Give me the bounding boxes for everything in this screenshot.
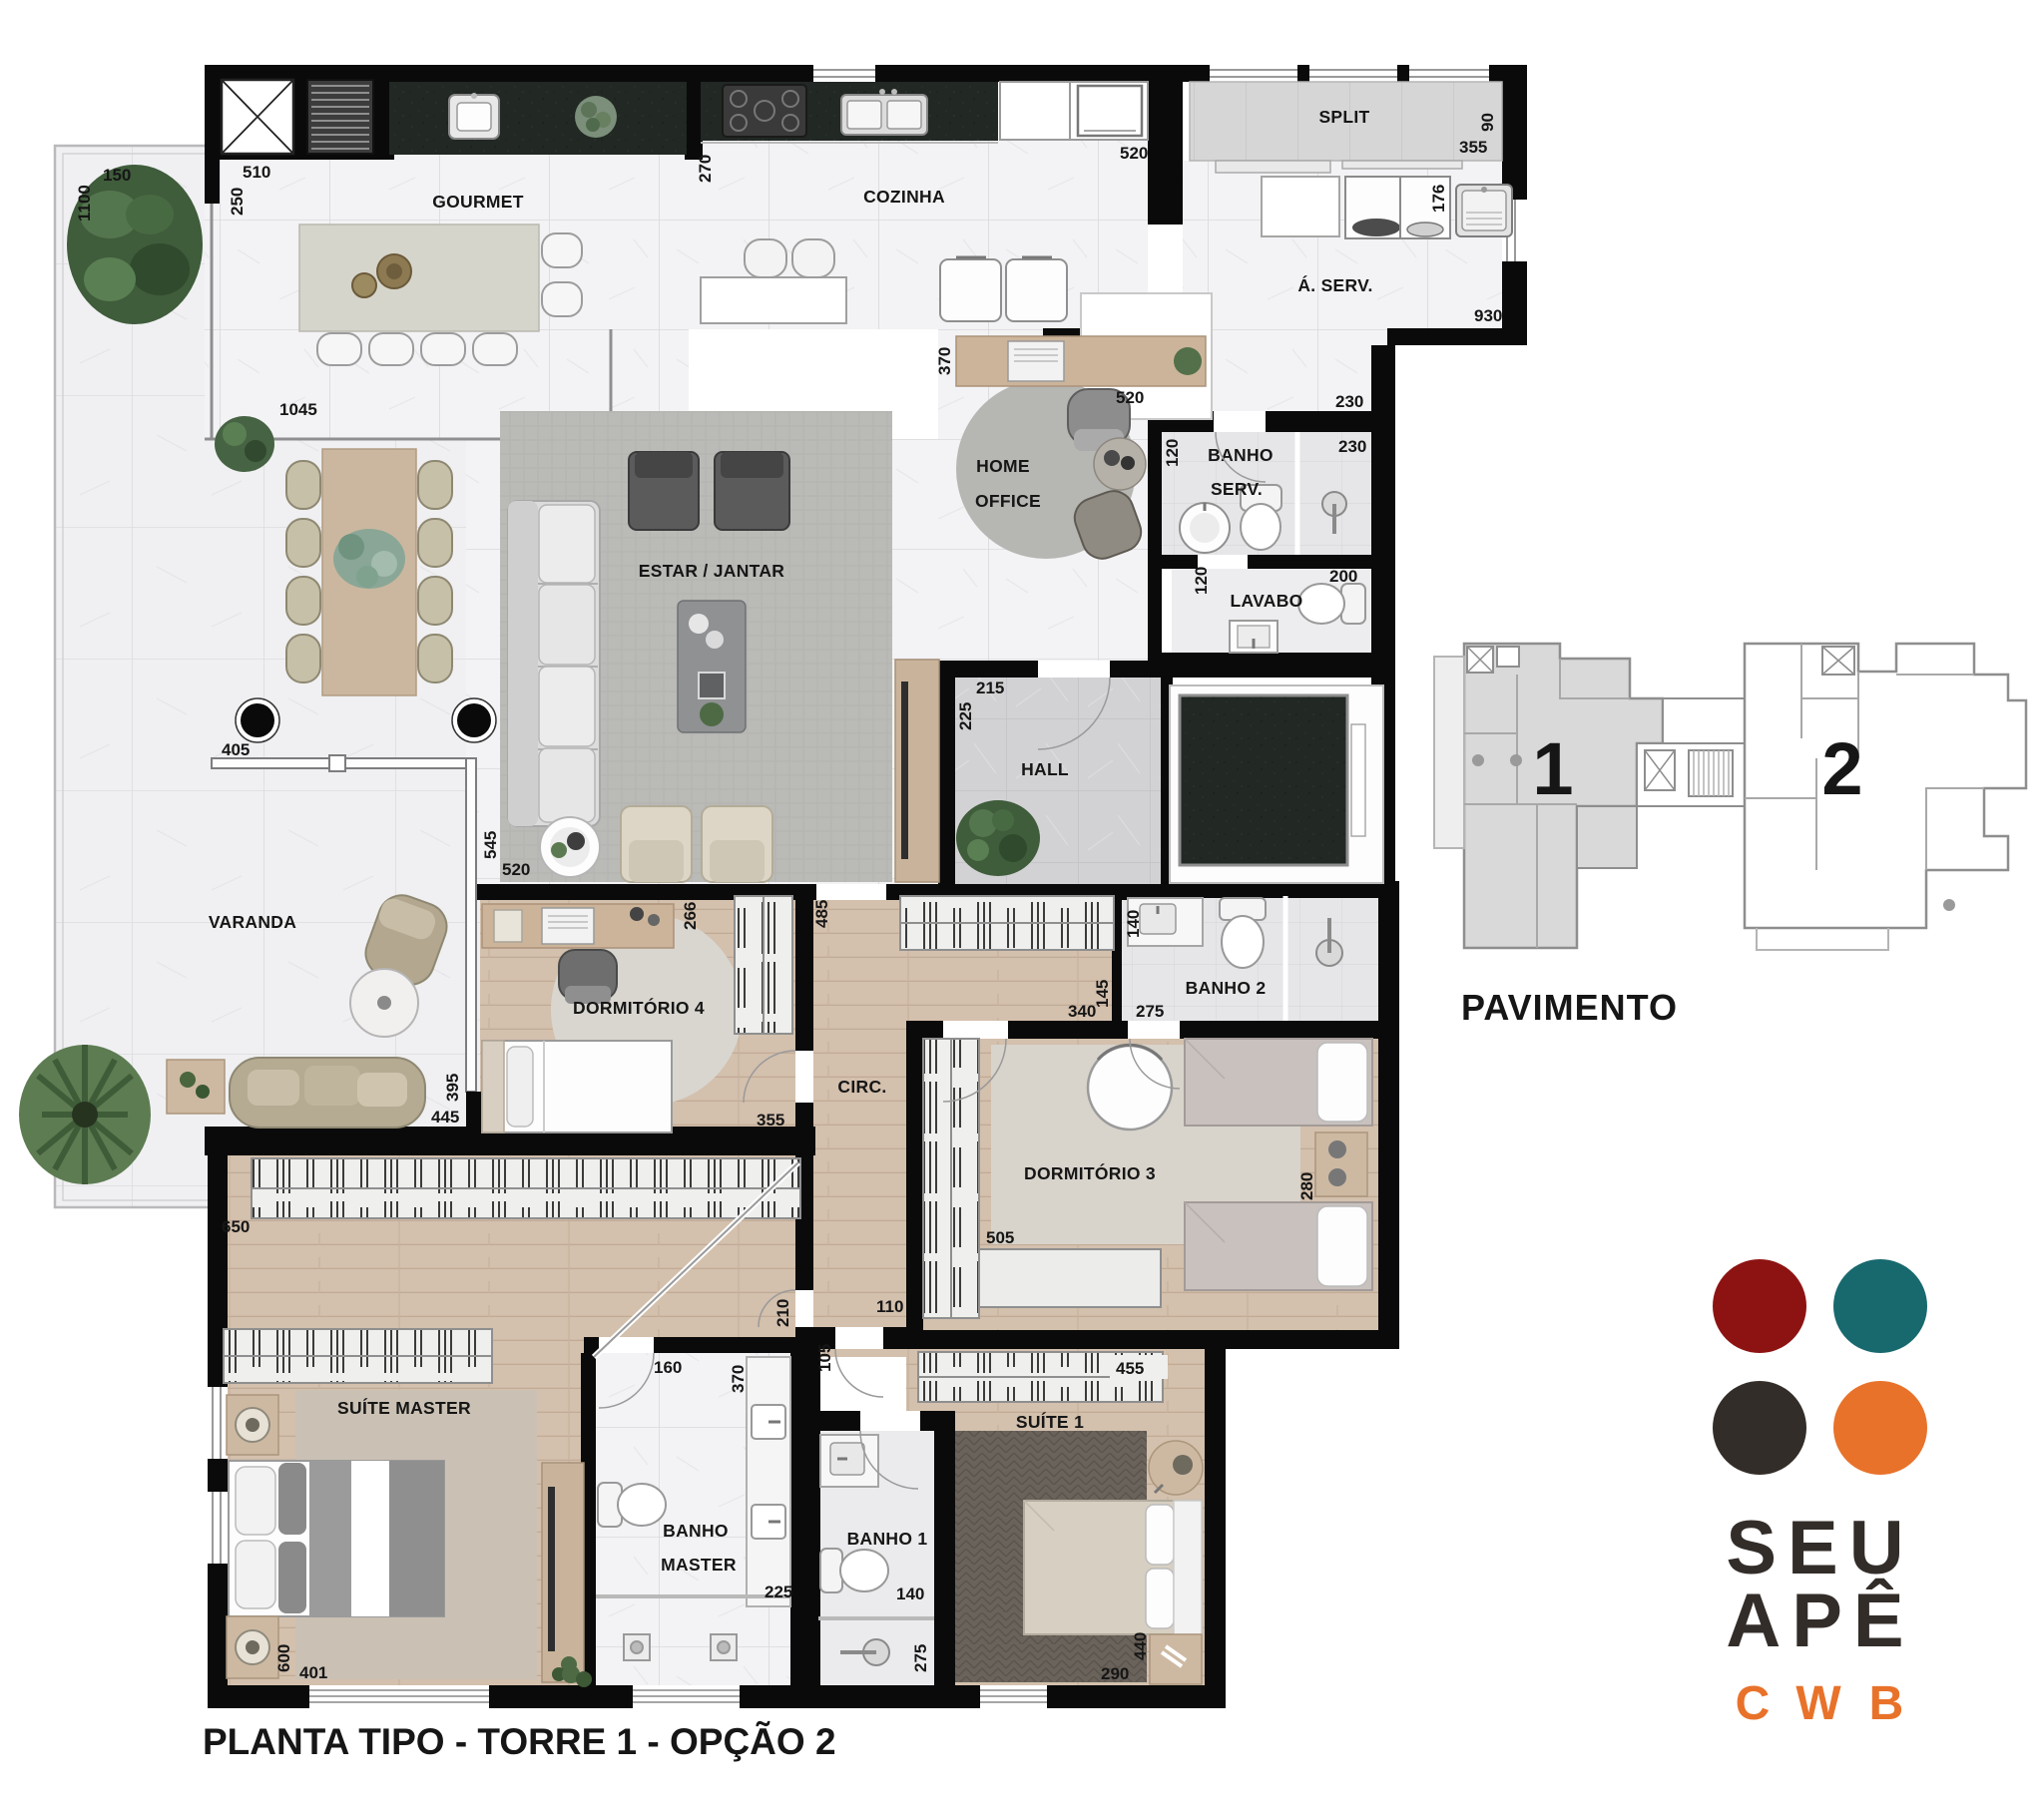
svg-text:105: 105 <box>815 1344 834 1372</box>
svg-text:225: 225 <box>956 702 975 730</box>
svg-text:ESTAR / JANTAR: ESTAR / JANTAR <box>639 561 785 581</box>
svg-text:440: 440 <box>1131 1632 1150 1660</box>
svg-text:200: 200 <box>1329 567 1357 586</box>
svg-text:PLANTA TIPO - TORRE 1 - OPÇÃO: PLANTA TIPO - TORRE 1 - OPÇÃO 2 <box>203 1720 836 1762</box>
svg-text:Á. SERV.: Á. SERV. <box>1297 274 1372 295</box>
svg-text:355: 355 <box>1459 138 1487 157</box>
svg-text:405: 405 <box>222 740 250 759</box>
svg-text:445: 445 <box>431 1108 459 1127</box>
svg-text:505: 505 <box>986 1228 1014 1247</box>
svg-text:C: C <box>1736 1677 1771 1730</box>
svg-text:401: 401 <box>299 1663 327 1682</box>
svg-text:510: 510 <box>243 163 270 182</box>
svg-text:SUÍTE MASTER: SUÍTE MASTER <box>337 1397 471 1418</box>
svg-text:SERV.: SERV. <box>1211 479 1263 499</box>
svg-text:140: 140 <box>896 1585 924 1603</box>
svg-text:355: 355 <box>757 1111 784 1130</box>
svg-text:HOME: HOME <box>976 456 1030 476</box>
svg-text:W: W <box>1795 1677 1841 1730</box>
svg-text:VARANDA: VARANDA <box>209 912 296 932</box>
svg-text:176: 176 <box>1429 185 1448 213</box>
svg-text:520: 520 <box>1116 388 1144 407</box>
svg-text:DORMITÓRIO 3: DORMITÓRIO 3 <box>1024 1162 1156 1183</box>
svg-text:1100: 1100 <box>75 185 94 222</box>
svg-text:GOURMET: GOURMET <box>432 192 524 212</box>
svg-text:275: 275 <box>911 1644 930 1672</box>
svg-text:PAVIMENTO: PAVIMENTO <box>1461 987 1678 1028</box>
svg-text:230: 230 <box>1335 392 1363 411</box>
svg-text:1045: 1045 <box>279 400 317 419</box>
svg-text:395: 395 <box>443 1074 462 1102</box>
svg-text:APÊ: APÊ <box>1726 1578 1914 1663</box>
svg-text:600: 600 <box>274 1644 293 1672</box>
svg-text:160: 160 <box>654 1358 682 1377</box>
svg-text:250: 250 <box>228 188 247 216</box>
svg-text:90: 90 <box>1478 113 1497 132</box>
svg-text:650: 650 <box>222 1217 250 1236</box>
svg-text:140: 140 <box>1124 910 1143 938</box>
svg-text:485: 485 <box>812 900 831 928</box>
svg-text:150: 150 <box>103 166 131 185</box>
svg-text:455: 455 <box>1116 1359 1144 1378</box>
svg-text:225: 225 <box>765 1583 792 1601</box>
svg-text:BANHO: BANHO <box>663 1521 729 1541</box>
svg-text:340: 340 <box>1068 1002 1096 1021</box>
svg-text:120: 120 <box>1163 439 1182 467</box>
svg-text:SPLIT: SPLIT <box>1318 107 1369 127</box>
svg-text:275: 275 <box>1136 1002 1164 1021</box>
svg-text:MASTER: MASTER <box>661 1555 737 1575</box>
svg-text:210: 210 <box>773 1299 792 1327</box>
svg-text:520: 520 <box>1120 144 1148 163</box>
svg-text:SUÍTE 1: SUÍTE 1 <box>1016 1411 1084 1432</box>
svg-text:545: 545 <box>481 831 500 859</box>
svg-text:HALL: HALL <box>1021 759 1069 779</box>
svg-text:COZINHA: COZINHA <box>863 187 945 207</box>
svg-text:B: B <box>1869 1677 1904 1730</box>
svg-text:266: 266 <box>681 902 700 930</box>
svg-text:520: 520 <box>502 860 530 879</box>
svg-text:930: 930 <box>1474 306 1502 325</box>
svg-text:BANHO 1: BANHO 1 <box>847 1529 928 1549</box>
svg-text:2: 2 <box>1821 727 1862 810</box>
svg-text:280: 280 <box>1297 1172 1316 1200</box>
svg-text:DORMITÓRIO 4: DORMITÓRIO 4 <box>573 997 705 1018</box>
svg-text:120: 120 <box>1192 567 1211 595</box>
svg-text:230: 230 <box>1338 437 1366 456</box>
svg-text:370: 370 <box>935 347 954 375</box>
svg-text:110: 110 <box>876 1297 903 1316</box>
svg-text:OFFICE: OFFICE <box>975 491 1041 511</box>
svg-text:270: 270 <box>696 155 715 183</box>
svg-text:370: 370 <box>729 1365 748 1393</box>
svg-text:LAVABO: LAVABO <box>1230 591 1302 611</box>
svg-text:1: 1 <box>1532 727 1573 810</box>
svg-text:290: 290 <box>1101 1664 1129 1683</box>
svg-text:CIRC.: CIRC. <box>837 1077 886 1097</box>
svg-text:BANHO 2: BANHO 2 <box>1186 978 1267 998</box>
svg-text:215: 215 <box>976 679 1004 697</box>
